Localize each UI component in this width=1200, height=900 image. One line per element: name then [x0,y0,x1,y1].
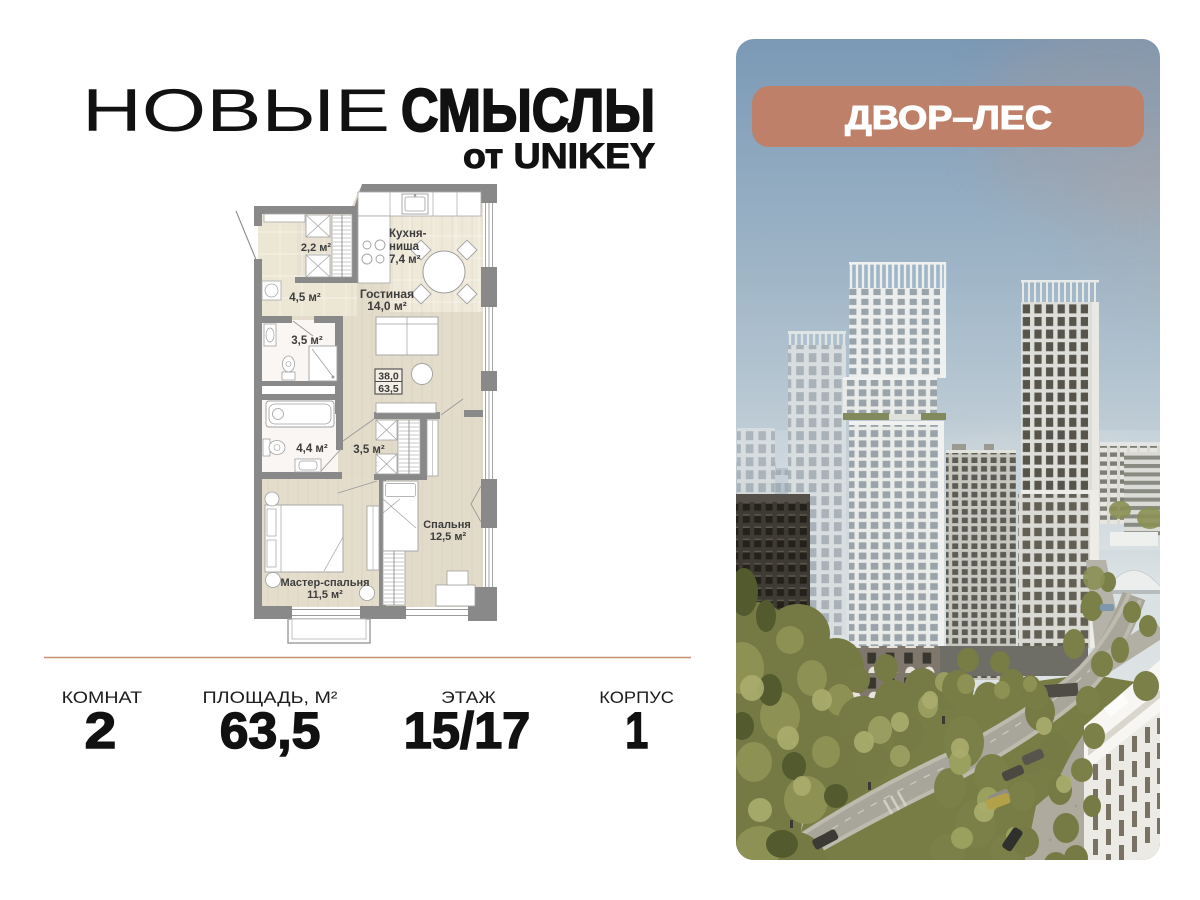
svg-text:2: 2 [85,702,117,759]
svg-text:63,5: 63,5 [220,702,321,759]
svg-text:НОВЫЕ: НОВЫЕ [82,77,390,144]
svg-text:11,5 м²: 11,5 м² [307,589,343,601]
svg-text:15/17: 15/17 [404,702,531,759]
svg-text:3,5 м²: 3,5 м² [291,335,323,347]
svg-text:4,4 м²: 4,4 м² [296,443,328,455]
svg-text:Кухня-: Кухня- [389,228,427,240]
svg-text:ниша: ниша [389,241,420,253]
svg-text:1: 1 [625,702,648,759]
svg-text:63,5: 63,5 [378,383,399,395]
svg-text:2,2 м²: 2,2 м² [301,242,331,254]
svg-text:7,4 м²: 7,4 м² [389,254,421,266]
svg-text:СМЫСЛЫ: СМЫСЛЫ [401,77,655,144]
svg-text:ДВОР–ЛЕС: ДВОР–ЛЕС [845,99,1052,136]
svg-text:3,5 м²: 3,5 м² [353,444,385,456]
svg-text:12,5 м²: 12,5 м² [430,531,467,543]
svg-text:4,5 м²: 4,5 м² [289,292,321,304]
svg-text:Мастер-спальня: Мастер-спальня [280,577,369,589]
svg-text:38,0: 38,0 [378,371,399,383]
svg-text:Спальня: Спальня [423,519,471,531]
svg-text:от UNIKEY: от UNIKEY [463,137,655,176]
svg-text:14,0 м²: 14,0 м² [367,299,407,313]
